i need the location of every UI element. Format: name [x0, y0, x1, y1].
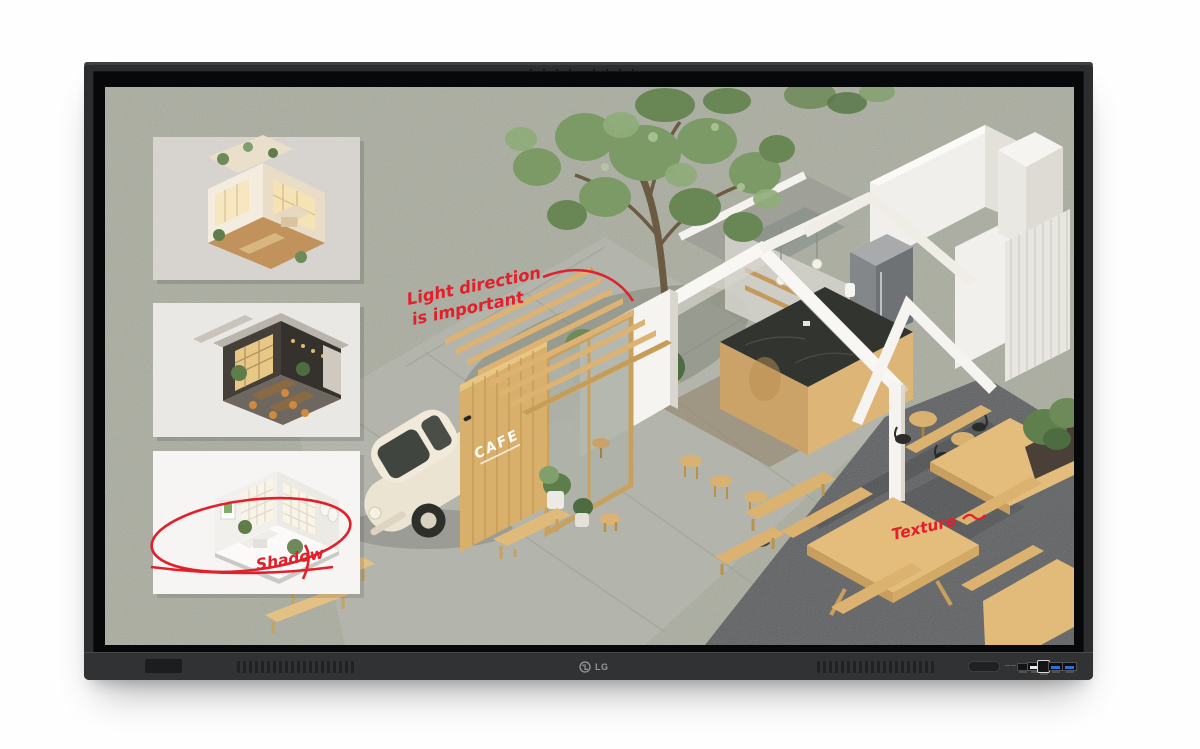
- thumbnail-warm-cafe-interior[interactable]: [153, 135, 364, 284]
- power-button[interactable]: [968, 661, 1000, 672]
- speaker-grille-right: [817, 661, 935, 673]
- bezel-mark: [1005, 665, 1010, 666]
- canvas-scene: CAFE: [105, 87, 1074, 645]
- lg-logo-text: LG: [595, 662, 609, 672]
- screen-glass: CAFE: [93, 71, 1084, 653]
- lg-display-monitor: CAFE: [84, 62, 1093, 680]
- whiteboard-canvas[interactable]: CAFE: [105, 87, 1074, 645]
- thumbnail-white-room-interior[interactable]: [153, 451, 364, 598]
- usb3-port-2: [1062, 662, 1077, 671]
- usb3-port-1: [1048, 662, 1063, 671]
- lg-logo: LG: [579, 661, 609, 673]
- bottom-bezel: LG: [84, 652, 1093, 680]
- lg-logo-icon: [579, 661, 591, 673]
- speaker-grille-left: [237, 661, 357, 673]
- ir-sensor-window: [145, 659, 182, 673]
- product-photo-stage: CAFE: [0, 0, 1200, 749]
- thumbnail-dark-lounge-interior[interactable]: [153, 303, 364, 441]
- bezel-mark: [1011, 665, 1016, 666]
